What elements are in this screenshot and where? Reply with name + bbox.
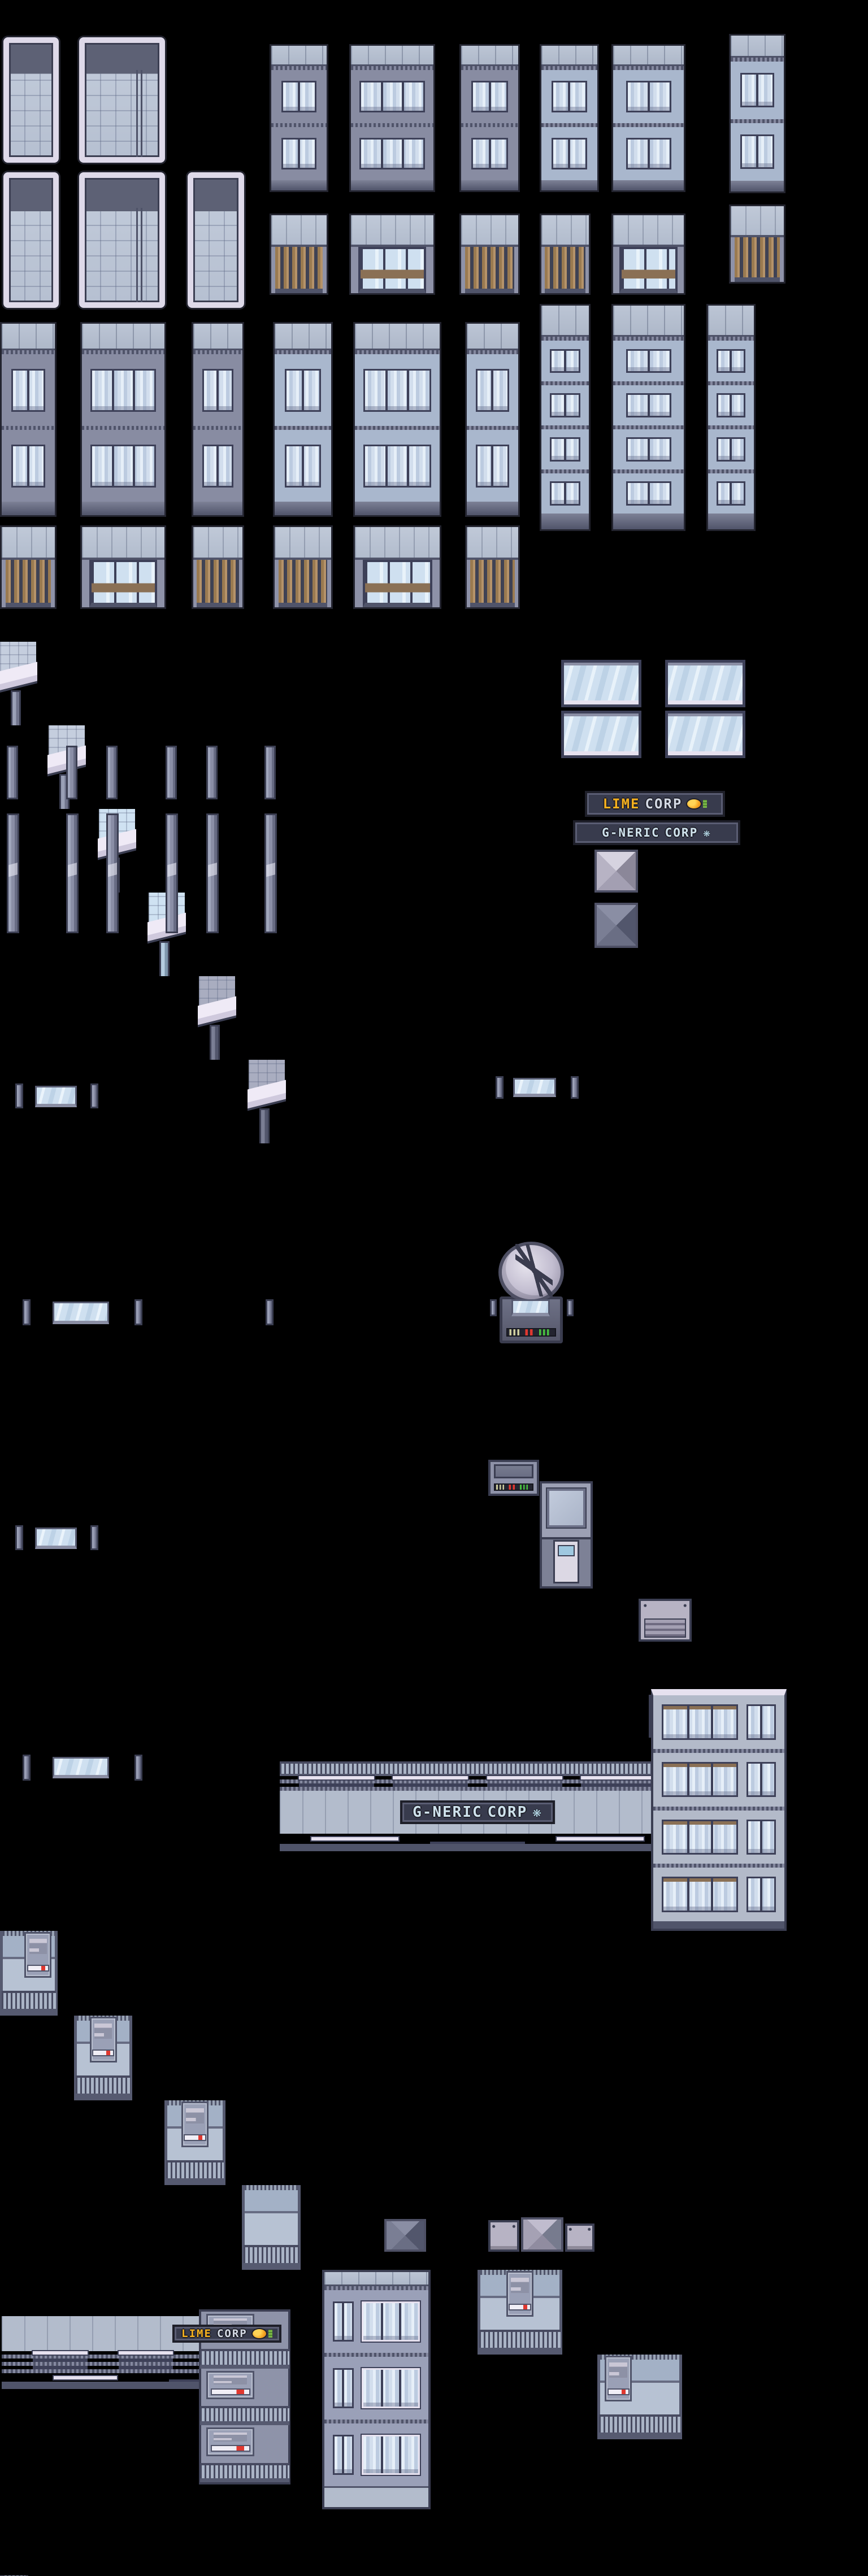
- tileset-canvas: LIMECORPG-NERICCORP❋G-NERICCORP❋LIMECORP: [0, 0, 868, 2576]
- tile-pillar: [90, 1084, 98, 1108]
- facade-floor: [280, 1776, 675, 1779]
- tile-pillar: [23, 1755, 31, 1781]
- window: [281, 81, 317, 112]
- window: [202, 445, 234, 488]
- facade-floor: [613, 473, 684, 514]
- tile-window-strip: [35, 1086, 77, 1107]
- facade-base: [461, 180, 518, 190]
- sign-gneric-corp: G-NERICCORP❋: [400, 1800, 555, 1824]
- indicator-lights: [506, 1328, 556, 1337]
- ledge-band: [324, 2353, 428, 2357]
- facade-floor: [82, 430, 164, 502]
- rooftop-structure: [605, 2356, 632, 2401]
- tile-pillar: [90, 1525, 98, 1550]
- ledge-band: [351, 66, 433, 70]
- facade-floor: [653, 1811, 784, 1864]
- facade-floor: [82, 354, 164, 426]
- tile-window-strip: [513, 1078, 556, 1097]
- ledge-band: [541, 425, 589, 429]
- tile-building-facade: [353, 322, 441, 517]
- tile-pillar: [15, 1525, 23, 1550]
- facade-floor: [324, 2290, 428, 2353]
- roof-vent-pyramid: [384, 2219, 426, 2252]
- window: [119, 2351, 173, 2355]
- tile-roof-corner-trim: [0, 642, 36, 725]
- window: [626, 437, 671, 462]
- window: [626, 393, 671, 417]
- facade-floor: [653, 1868, 784, 1921]
- facade-base: [613, 514, 684, 529]
- machine-screen: [547, 1489, 585, 1528]
- ledge-band: [653, 1749, 784, 1753]
- window: [740, 73, 774, 107]
- dish-arm: [515, 1244, 553, 1297]
- rooftop-structure: [506, 2271, 533, 2317]
- ledge-band: [613, 337, 684, 341]
- window: [393, 1783, 468, 1787]
- roof-strip: [351, 46, 433, 66]
- facade-floor: [467, 430, 518, 502]
- tile-roof-corner-trim: [199, 976, 235, 1060]
- roof-strip: [613, 306, 684, 337]
- ledge-band: [461, 66, 518, 70]
- window: [393, 1776, 468, 1779]
- tile-rooftop: [0, 1931, 58, 2016]
- red-indicator-light: [609, 2390, 628, 2394]
- ground-floor: [280, 1834, 675, 1844]
- window: [476, 445, 509, 488]
- roof-vent-pyramid: [594, 850, 638, 893]
- facade-floor: [2, 430, 55, 502]
- window: [581, 1783, 656, 1787]
- tile-shutter-storefront: [192, 525, 244, 609]
- facade-base: [271, 180, 327, 190]
- window: [747, 1820, 775, 1855]
- window: [662, 1762, 738, 1798]
- window: [333, 2435, 354, 2475]
- tile-building-facade: [459, 44, 520, 192]
- tile-glass-storefront: [188, 172, 244, 308]
- tile-glass-storefront: [79, 172, 165, 308]
- window: [662, 1820, 738, 1855]
- window: [557, 1837, 644, 1840]
- pinwheel-icon: ❋: [703, 826, 711, 839]
- ledge-band: [271, 123, 327, 127]
- facade-floor: [280, 1783, 675, 1787]
- tile-building-facade: [611, 304, 685, 531]
- window: [33, 2351, 88, 2355]
- balcony-railing: [200, 2463, 289, 2482]
- tile-rooftop: [164, 2100, 225, 2185]
- tile-shutter-storefront: [0, 525, 57, 609]
- entrance-door: [430, 1842, 525, 1844]
- window: [476, 369, 509, 412]
- ledge-band: [467, 350, 518, 354]
- pinwheel-icon: ❋: [532, 1804, 542, 1821]
- balcony-railing: [280, 1761, 675, 1776]
- tile-pillar-tall: [7, 813, 19, 933]
- window: [662, 1704, 738, 1740]
- window: [90, 445, 157, 488]
- rooftop-structure: [90, 2017, 117, 2062]
- tile-rooftop: [597, 2355, 682, 2439]
- tile-rooftop: [478, 2270, 562, 2355]
- ledge-band: [541, 337, 589, 341]
- window: [33, 2366, 88, 2369]
- facade-floor: [275, 430, 331, 502]
- ledge-band: [613, 381, 684, 385]
- tile-pillar-tall: [106, 813, 119, 933]
- ledge-band: [193, 426, 242, 430]
- window: [550, 437, 580, 462]
- window: [33, 2359, 88, 2362]
- facade-base: [351, 180, 433, 190]
- ledge-band: [708, 381, 754, 385]
- tile-glass-storefront: [3, 172, 59, 308]
- facade-base: [467, 502, 518, 515]
- window: [747, 1877, 775, 1912]
- tile-pillar: [134, 1299, 142, 1325]
- corner-pillar: [159, 941, 170, 976]
- window: [285, 369, 321, 412]
- tile-roof-corner-trim: [249, 1060, 285, 1143]
- facade-floor: [731, 62, 784, 119]
- ac-vent-unit: [639, 1599, 692, 1642]
- tile-building-facade: [729, 34, 785, 193]
- roof-strip: [275, 324, 331, 350]
- window: [717, 349, 746, 373]
- tile-rooftop: [74, 2016, 132, 2100]
- tile-shutter-storefront: [270, 214, 328, 295]
- window: [747, 1762, 775, 1798]
- door-screen: [558, 1545, 574, 1556]
- sign-word-secondary: CORP: [645, 796, 683, 812]
- roof-strip: [324, 2272, 428, 2286]
- facade-floor: [708, 385, 754, 425]
- window: [285, 445, 321, 488]
- facade-floor: [461, 127, 518, 180]
- tile-window-wall: [665, 711, 745, 758]
- tile-pillar: [166, 746, 177, 799]
- ledge-band: [355, 426, 440, 430]
- facade-floor: [541, 429, 589, 469]
- ledge-band: [708, 337, 754, 341]
- ledge-band: [653, 1807, 784, 1811]
- window: [311, 1837, 398, 1840]
- roof-railing: [76, 2075, 131, 2098]
- tile-pillar: [66, 746, 77, 799]
- lemon-icon: [687, 799, 701, 808]
- facade-floor: [731, 123, 784, 181]
- window: [471, 81, 508, 112]
- roof-railing: [244, 2245, 299, 2267]
- facade-floor: [613, 127, 684, 180]
- ledge-band: [324, 2286, 428, 2290]
- roof-strip: [355, 324, 440, 350]
- tile-building-facade: [270, 44, 328, 192]
- tile-glass-door-storefront: [80, 525, 166, 609]
- ledge-band: [275, 426, 331, 430]
- window: [363, 445, 431, 488]
- tile-glass-storefront: [3, 37, 59, 163]
- facade-base: [653, 1921, 784, 1929]
- roof-strip: [2, 324, 55, 350]
- facade-floor: [541, 341, 589, 381]
- window: [550, 393, 580, 417]
- tile-pillar: [490, 1299, 497, 1316]
- vent-louvers: [645, 1620, 685, 1637]
- sprout-icon: [703, 800, 707, 808]
- tile-building-facade: [349, 44, 435, 192]
- window: [119, 2359, 173, 2362]
- sign-lime-corp: LIMECORP: [585, 791, 725, 817]
- tile-building-facade: [273, 322, 333, 517]
- tile-window-wall: [561, 711, 641, 758]
- ledge-band: [613, 123, 684, 127]
- roof-strip: [82, 324, 164, 350]
- facade-floor: [708, 341, 754, 381]
- facade-floor: [271, 70, 327, 123]
- facade-floor: [2, 354, 55, 426]
- ledge-band: [541, 469, 589, 473]
- balcony-railing: [200, 2406, 289, 2425]
- facade-base: [541, 514, 589, 529]
- gneric-corp-building-facade: G-NERICCORP❋: [280, 1761, 675, 2013]
- ledge-band: [541, 123, 597, 127]
- tile-shutter-storefront: [273, 525, 333, 609]
- roof-strip: [708, 306, 754, 337]
- facade-floor: [351, 127, 433, 180]
- sign-gneric-corp: G-NERICCORP❋: [573, 820, 740, 845]
- tile-glass-door-storefront: [611, 214, 685, 295]
- sign-word-primary: LIME: [603, 796, 640, 812]
- tile-window-wall: [665, 660, 745, 707]
- corner-pillar: [259, 1108, 270, 1143]
- balcony-row: [201, 2425, 288, 2482]
- ledge-band: [708, 425, 754, 429]
- facade-base: [2, 502, 55, 515]
- window: [281, 138, 317, 169]
- facade-floor: [541, 127, 597, 180]
- structure-panel: [214, 2375, 248, 2384]
- ledge-band: [653, 1864, 784, 1868]
- roof-strip: [541, 306, 589, 337]
- lemon-icon: [253, 2329, 266, 2338]
- roof-strip: [271, 46, 327, 66]
- window: [299, 1783, 374, 1787]
- ledge-band: [324, 2420, 428, 2423]
- balcony-row: [201, 2369, 288, 2426]
- ledge-band: [613, 66, 684, 70]
- facade-floor: [271, 127, 327, 180]
- structure-panel: [186, 2108, 204, 2124]
- red-indicator-light: [510, 2305, 530, 2309]
- window: [550, 481, 580, 506]
- window: [299, 1776, 374, 1779]
- window: [747, 1704, 775, 1740]
- ledge-band: [193, 350, 242, 354]
- ledge-band: [708, 469, 754, 473]
- ledge-band: [275, 350, 331, 354]
- facade-base: [324, 2486, 428, 2507]
- balcony-panel: [206, 2371, 254, 2399]
- window: [552, 81, 587, 112]
- tile-building-facade: [0, 322, 57, 517]
- facade-floor: [324, 2357, 428, 2420]
- roof-strip: [541, 46, 597, 66]
- facade-floor: [355, 430, 440, 502]
- window: [717, 481, 746, 506]
- sign-lime-corp: LIMECORP: [172, 2325, 281, 2343]
- sign-word-secondary: CORP: [488, 1804, 528, 1821]
- tile-pillar: [496, 1076, 504, 1099]
- ledge-band: [731, 58, 784, 62]
- window: [487, 1776, 562, 1779]
- ledge-band: [280, 1779, 675, 1783]
- window: [11, 445, 45, 488]
- ledge-band: [271, 66, 327, 70]
- red-indicator-light: [212, 2390, 249, 2394]
- window: [552, 138, 587, 169]
- tile-building-facade: [540, 44, 599, 192]
- rooftop-structure: [24, 1932, 51, 1978]
- tile-building-facade: [192, 322, 244, 517]
- tile-pillar: [134, 1755, 142, 1781]
- red-indicator-light: [212, 2446, 249, 2451]
- tile-shutter-storefront: [729, 204, 785, 284]
- facade-floor: [541, 473, 589, 514]
- roof-strip: [731, 36, 784, 58]
- facade-floor: [461, 70, 518, 123]
- red-indicator-light: [28, 1966, 48, 1970]
- tile-pillar-tall: [66, 813, 79, 933]
- tile-glass-storefront: [79, 37, 165, 163]
- tile-window-strip: [53, 1302, 109, 1324]
- structure-panel: [609, 2362, 627, 2378]
- facade-base: [708, 514, 754, 529]
- window: [363, 369, 431, 412]
- tile-pillar: [264, 746, 276, 799]
- utility-box: [488, 2220, 519, 2252]
- ledge-band: [467, 426, 518, 430]
- facade-floor: [193, 354, 242, 426]
- ledge-band: [2, 426, 55, 430]
- window: [626, 481, 671, 506]
- tile-glass-door-storefront: [353, 525, 441, 609]
- roof-strip: [461, 46, 518, 66]
- facade-floor: [351, 70, 433, 123]
- roof-strip: [193, 324, 242, 350]
- ledge-band: [280, 1787, 675, 1791]
- indicator-lights: [494, 1483, 534, 1491]
- facade-floor: [467, 354, 518, 426]
- facade-base: [193, 502, 242, 515]
- tile-window-strip: [511, 1299, 550, 1316]
- facade-floor: [355, 354, 440, 426]
- window: [717, 437, 746, 462]
- tile-pillar: [567, 1299, 574, 1316]
- tile-rooftop: [242, 2185, 301, 2270]
- utility-door-unit: [540, 1481, 593, 1589]
- structure-panel: [511, 2278, 529, 2293]
- window: [550, 349, 580, 373]
- tile-pillar: [571, 1076, 579, 1099]
- facade-floor: [653, 1695, 784, 1749]
- utility-box: [565, 2223, 594, 2252]
- sign-word-primary: G-NERIC: [413, 1804, 483, 1821]
- ledge-band: [82, 426, 164, 430]
- tile-window-wall: [561, 660, 641, 707]
- balcony-panel: [206, 2427, 254, 2456]
- sign-word-primary: G-NERIC: [602, 826, 660, 839]
- window: [90, 369, 157, 412]
- red-indicator-light: [185, 2135, 205, 2140]
- facade-floor: [613, 429, 684, 469]
- window: [333, 2368, 354, 2408]
- balcony-railing: [200, 2349, 289, 2368]
- window: [626, 81, 671, 112]
- tile-building-facade: [540, 304, 591, 531]
- ledge-band: [731, 119, 784, 123]
- window: [333, 2301, 354, 2342]
- structure-panel: [29, 1939, 47, 1954]
- roof-vent-pyramid: [594, 903, 638, 948]
- facade-base: [280, 1844, 675, 1851]
- rooftop-structure: [181, 2101, 209, 2147]
- tile-pillar: [7, 746, 18, 799]
- facade-floor: [708, 429, 754, 469]
- structure-panel: [214, 2433, 248, 2442]
- small-building-facade: [322, 2270, 431, 2509]
- ledge-band: [541, 381, 589, 385]
- roof-railing: [599, 2414, 680, 2436]
- window: [581, 1776, 656, 1779]
- ledge-band: [541, 66, 597, 70]
- facade-floor: [613, 385, 684, 425]
- tile-pillar: [266, 1299, 274, 1325]
- window: [626, 138, 671, 169]
- tile-pillar-tall: [166, 813, 178, 933]
- roof-railing: [479, 2330, 561, 2352]
- red-indicator-light: [93, 2051, 113, 2055]
- window: [717, 393, 746, 417]
- facade-floor: [541, 70, 597, 123]
- roof-vent-pyramid: [521, 2217, 563, 2252]
- tile-pillar-tall: [206, 813, 219, 933]
- tile-shutter-storefront: [459, 214, 520, 295]
- ledge-band: [355, 350, 440, 354]
- window: [362, 2435, 420, 2475]
- tile-shutter-storefront: [465, 525, 520, 609]
- facade-floor: [708, 473, 754, 514]
- window: [54, 2376, 117, 2379]
- tile-pillar: [15, 1084, 23, 1108]
- roof-strip: [613, 46, 684, 66]
- facade-base: [355, 502, 440, 515]
- window: [740, 134, 774, 169]
- window: [362, 2301, 420, 2342]
- console-screen: [494, 1464, 534, 1478]
- ledge-band: [2, 350, 55, 354]
- window: [662, 1877, 738, 1912]
- tile-building-facade: [706, 304, 756, 531]
- roof-railing: [166, 2160, 224, 2182]
- facade-base: [275, 502, 331, 515]
- window: [471, 138, 508, 169]
- ledge-band: [613, 469, 684, 473]
- tile-pillar-tall: [264, 813, 277, 933]
- tile-window-strip: [35, 1528, 77, 1549]
